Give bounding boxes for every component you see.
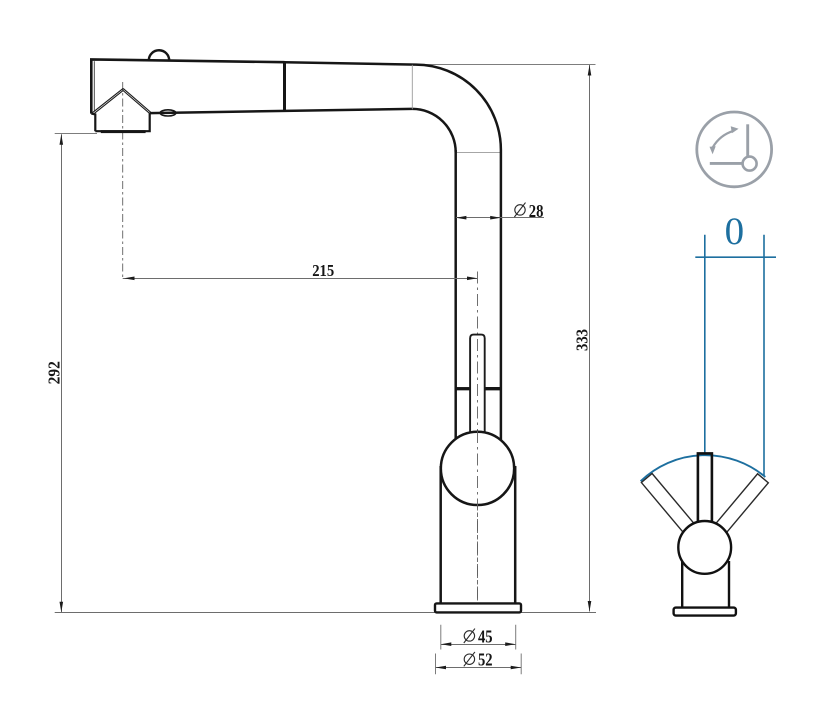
svg-text:28: 28 <box>529 201 544 221</box>
svg-text:333: 333 <box>573 329 592 351</box>
svg-text:45: 45 <box>478 626 493 646</box>
svg-text:52: 52 <box>478 650 493 670</box>
svg-text:215: 215 <box>312 261 334 280</box>
svg-text:0: 0 <box>725 210 745 253</box>
svg-text:292: 292 <box>44 361 63 384</box>
